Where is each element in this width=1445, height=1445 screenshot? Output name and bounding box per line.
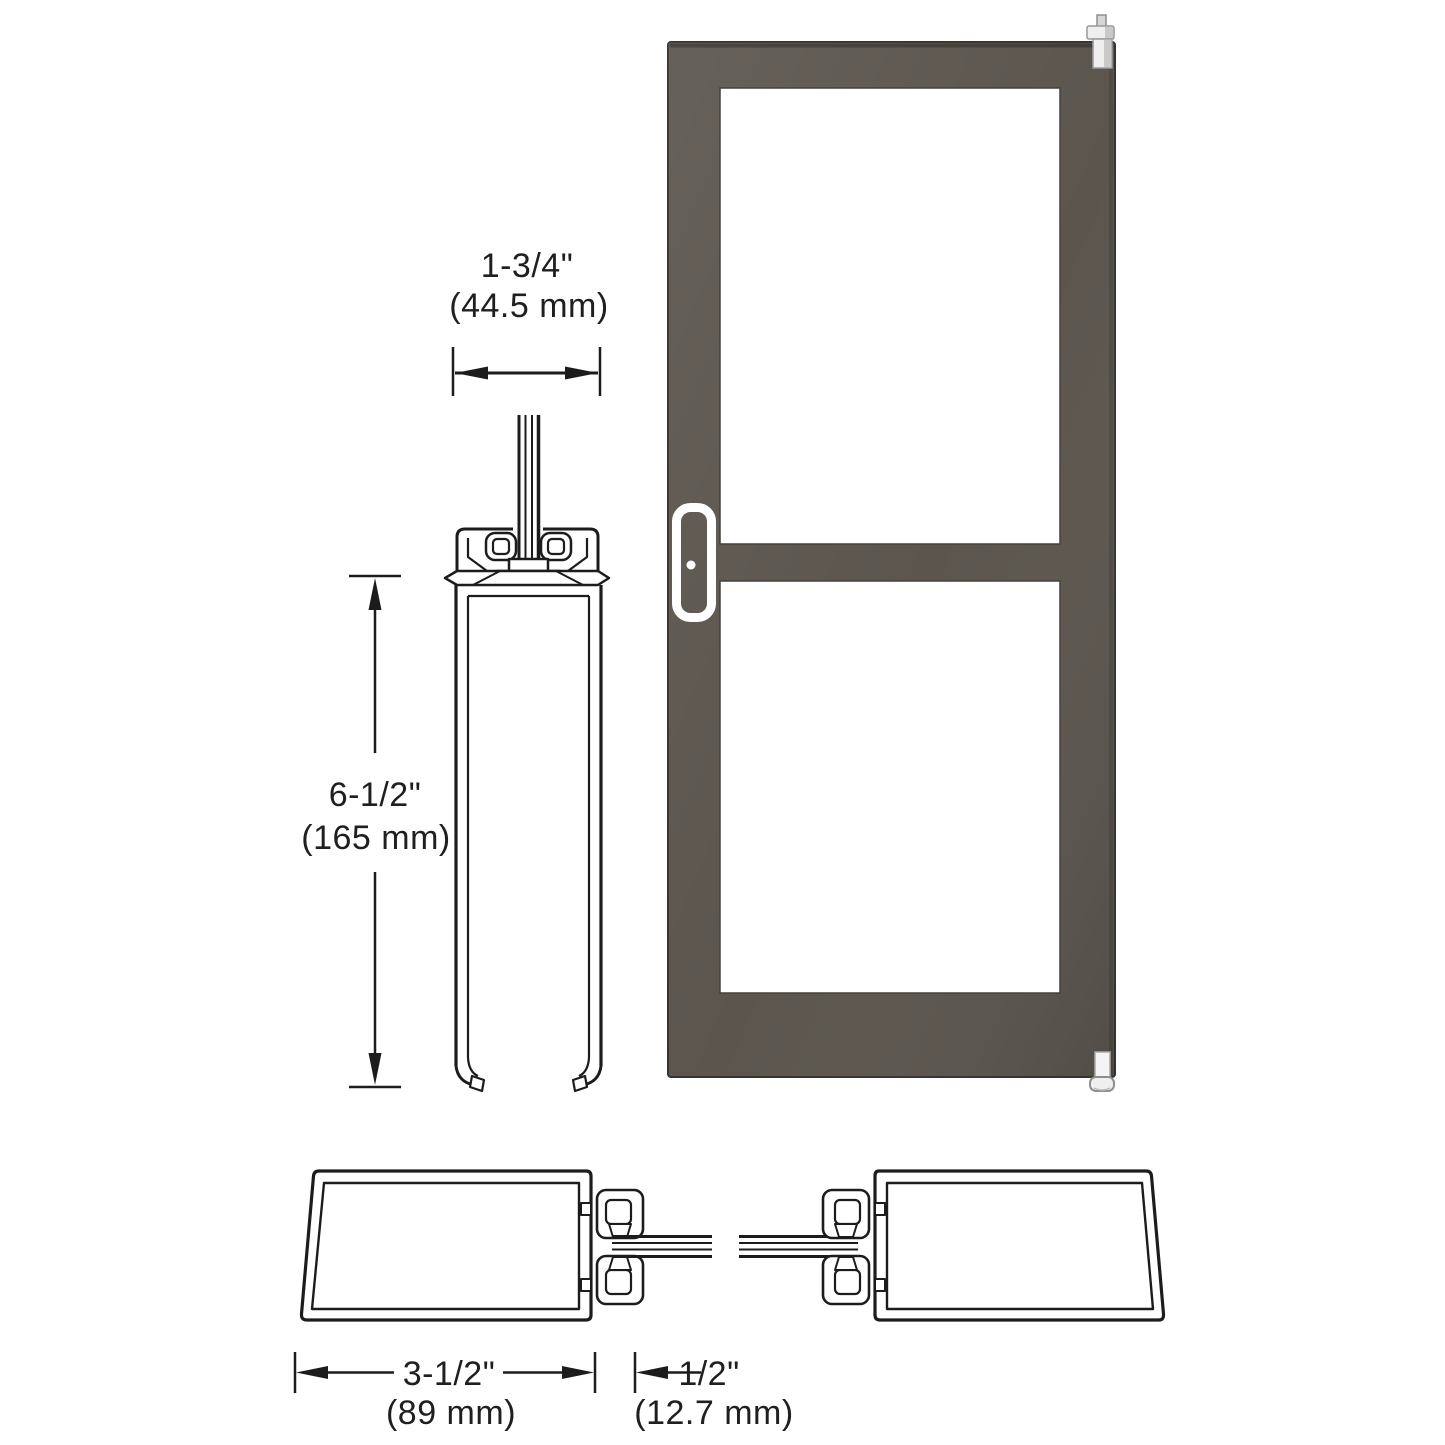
glass-gap-mm-label: (12.7 mm) — [634, 1394, 793, 1432]
rail-foot — [579, 1058, 589, 1076]
pivot-foot — [1090, 1077, 1114, 1091]
door-elevation — [668, 15, 1115, 1091]
gasket-wedge — [835, 1257, 857, 1270]
dim-arrow-down — [369, 1053, 382, 1085]
door-technical-drawing: 1-3/4" (44.5 mm) — [0, 0, 1445, 1445]
stop-clip — [875, 1203, 885, 1215]
door-thickness-dimension: 1-3/4" (44.5 mm) — [449, 247, 608, 396]
stop-clip — [875, 1279, 885, 1291]
stop-clip — [581, 1203, 591, 1215]
glass-section-horizontal — [612, 1237, 858, 1257]
stile-face-inches-label: 3-1/2" — [403, 1355, 496, 1393]
stile-outer — [301, 1171, 591, 1320]
gasket-detail — [606, 1200, 631, 1224]
dim-arrow-left — [455, 367, 488, 380]
door-top-edge — [670, 44, 1113, 48]
rail-height-dimension: 6-1/2" (165 mm) — [301, 576, 450, 1087]
gasket-wedge — [835, 1224, 857, 1237]
pivot-rod — [1095, 1052, 1110, 1078]
door-thickness-mm-label: (44.5 mm) — [449, 287, 608, 325]
stile-face-mm-label: (89 mm) — [386, 1394, 516, 1432]
dim-arrow-left — [636, 1366, 668, 1379]
rail-foot — [468, 1058, 478, 1076]
vertical-section-view — [445, 415, 609, 1091]
rail-foot-tip — [470, 1076, 484, 1091]
glazing-pocket-section — [445, 529, 609, 585]
gasket-wedge — [609, 1257, 631, 1270]
gasket-detail — [835, 1270, 860, 1294]
stile-face-dimension: 3-1/2" (89 mm) — [295, 1352, 595, 1432]
door-right-edge — [1109, 44, 1113, 1075]
door-thickness-inches-label: 1-3/4" — [481, 247, 574, 285]
right-stile-section — [823, 1171, 1164, 1320]
glass-section-vertical — [519, 415, 539, 560]
pivot-cap-shade — [1105, 27, 1113, 38]
gasket-detail — [548, 539, 564, 554]
gasket-detail — [606, 1270, 631, 1294]
stop-clip — [581, 1279, 591, 1291]
stile-outer — [875, 1171, 1164, 1320]
glass-panel-lower — [720, 581, 1060, 993]
dim-arrow-right — [565, 367, 598, 380]
dim-arrow-left — [296, 1366, 328, 1379]
glass-gap-inches-label: 1/2" — [678, 1355, 739, 1393]
technical-drawing-page: 1-3/4" (44.5 mm) — [0, 0, 1445, 1445]
glass-gap-dimension: 1/2" (12.7 mm) — [634, 1352, 793, 1432]
rail-box-section — [456, 585, 601, 1091]
gasket-detail — [835, 1200, 860, 1224]
rail-height-inches-label: 6-1/2" — [329, 776, 422, 814]
dim-arrow-right — [562, 1366, 594, 1379]
horizontal-section-view — [301, 1171, 1163, 1320]
pivot-rod-shade — [1104, 40, 1111, 67]
glass-panel-upper — [720, 88, 1060, 544]
left-stile-section — [301, 1171, 643, 1320]
pocket-inner — [468, 538, 487, 571]
cylinder-dot — [687, 561, 696, 570]
rail-foot-tip — [573, 1076, 587, 1091]
gasket-detail — [493, 539, 509, 554]
rail-height-mm-label: (165 mm) — [301, 819, 450, 857]
pocket-flange — [445, 571, 609, 585]
